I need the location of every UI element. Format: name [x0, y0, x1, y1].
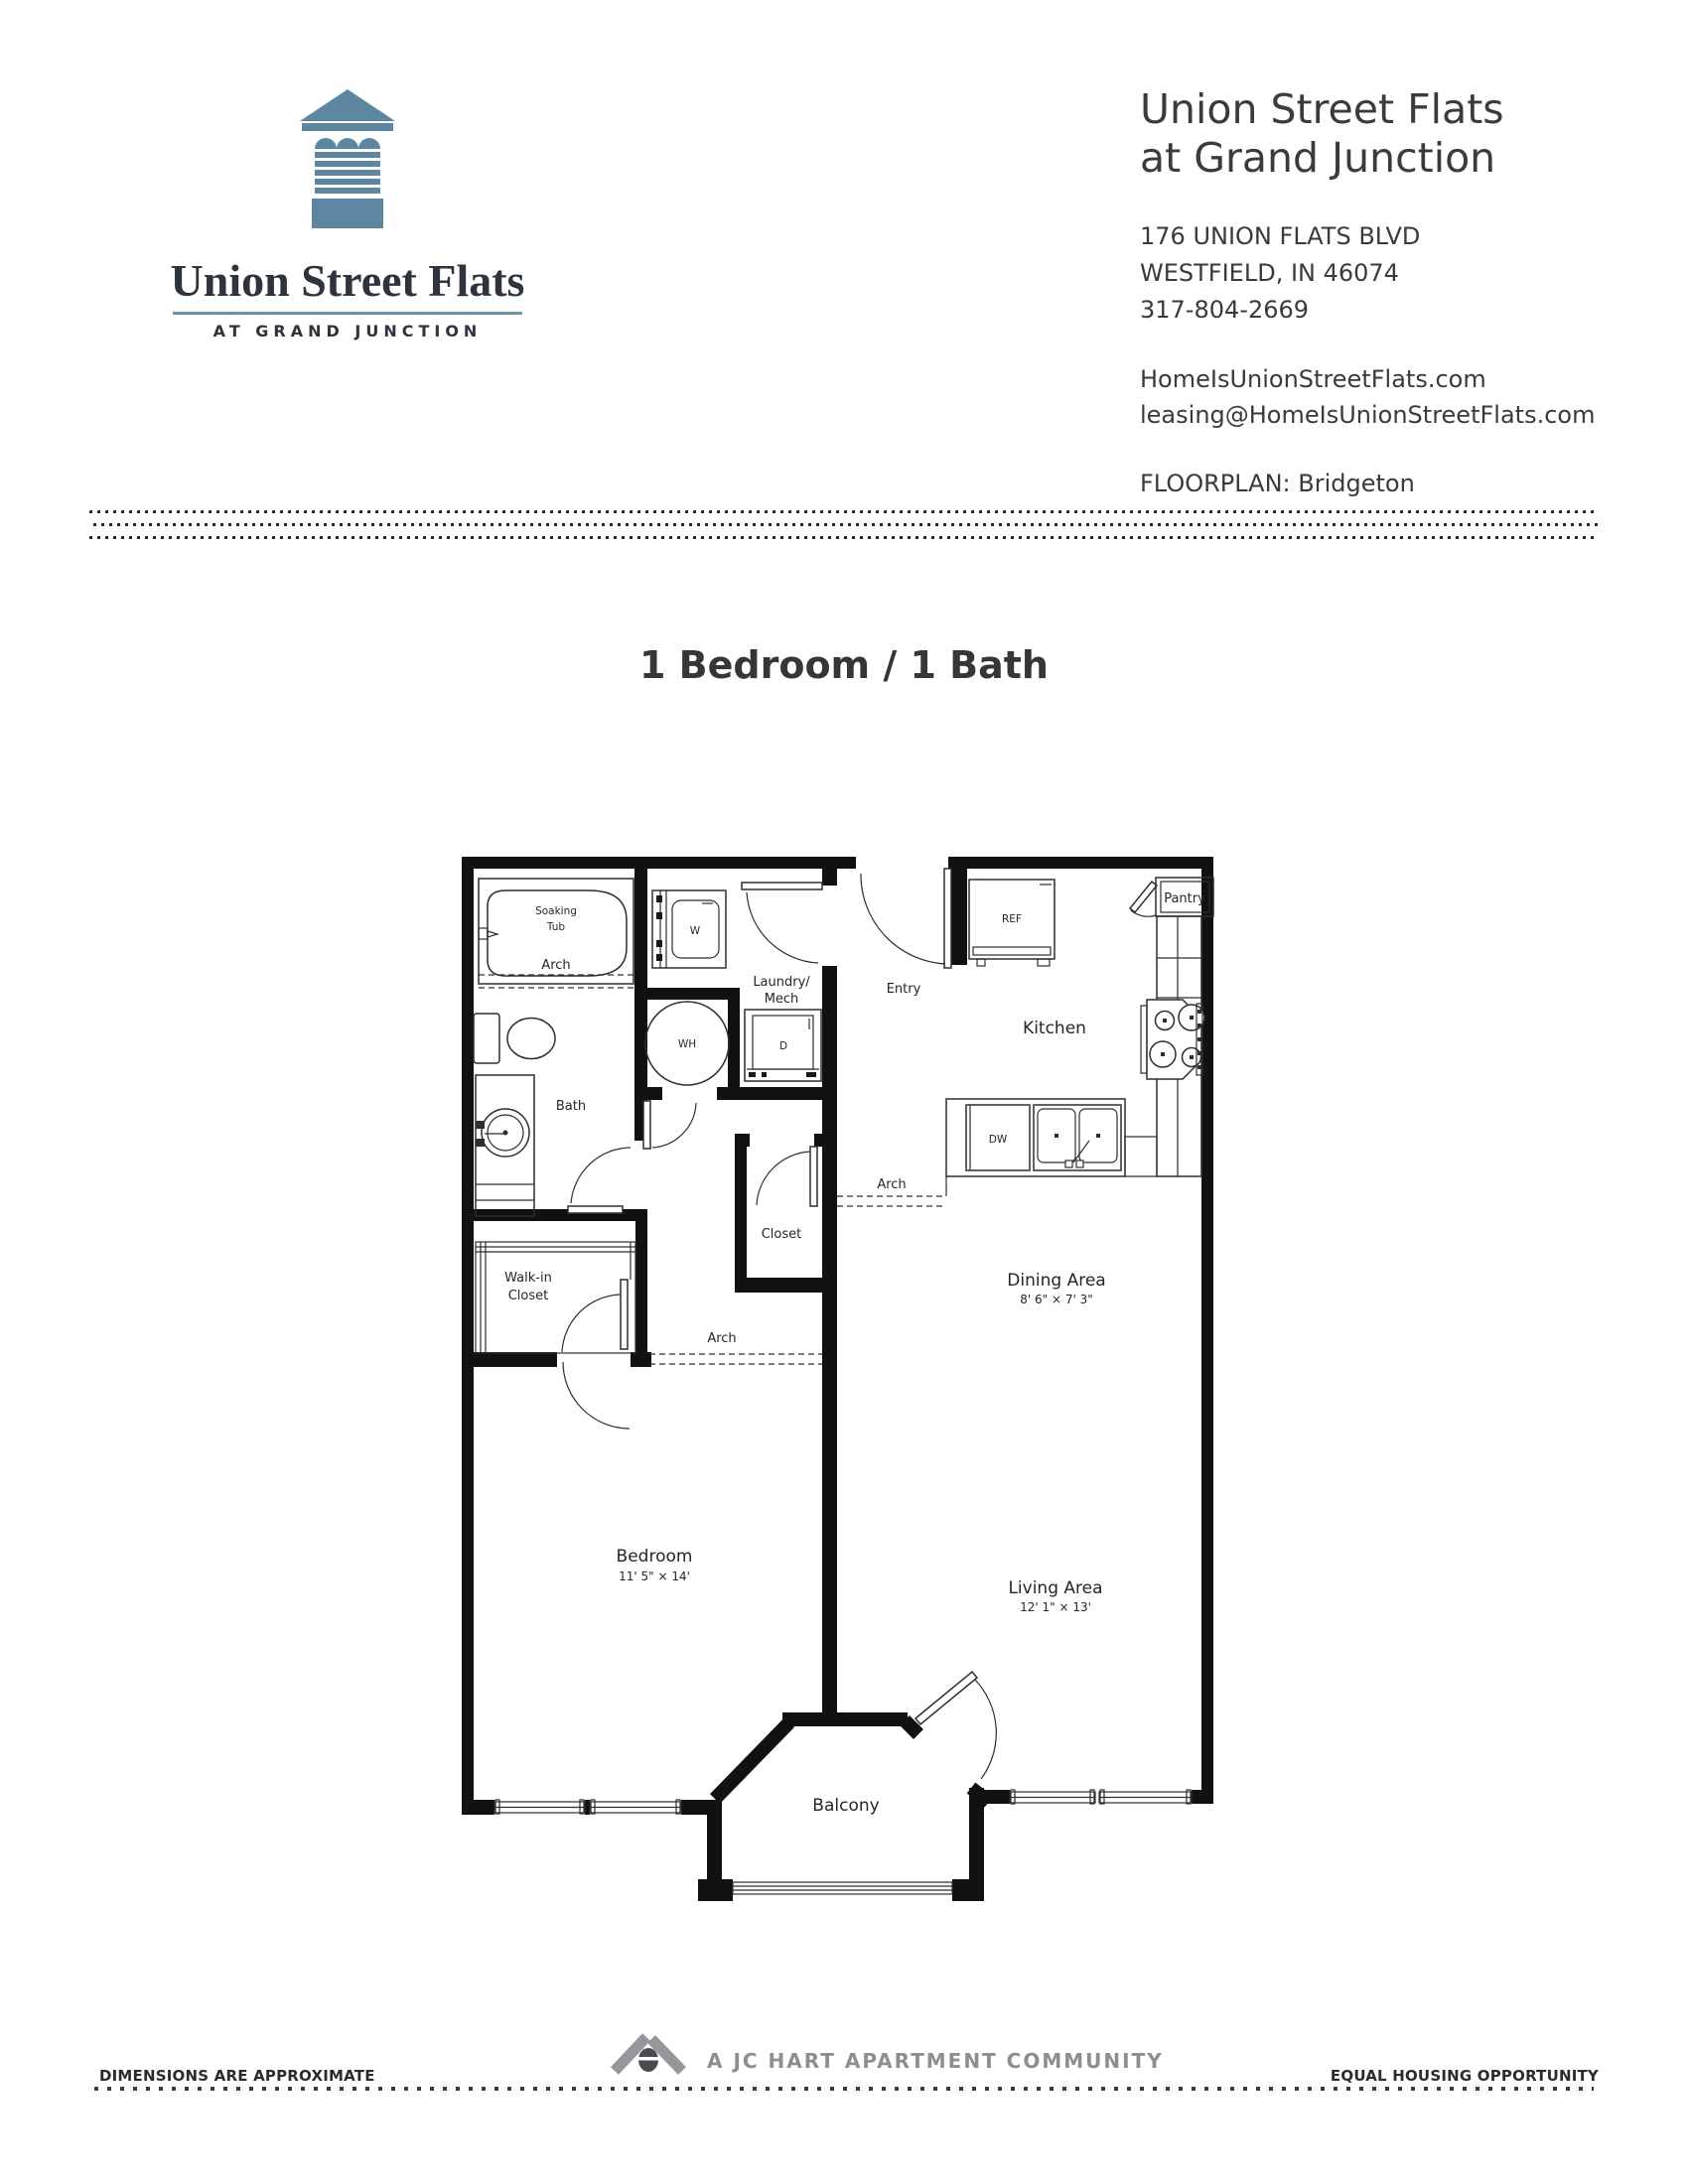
label-closet: Closet	[762, 1227, 802, 1242]
label-washer: W	[690, 925, 701, 937]
label-walkin-line2: Closet	[508, 1289, 549, 1303]
floorplan-label: FLOORPLAN:	[1140, 470, 1291, 497]
property-title-line1: Union Street Flats	[1140, 85, 1617, 134]
walk-in-closet-shelves	[476, 1242, 635, 1353]
divider-dots-row2	[89, 523, 1599, 526]
floorplan-line: FLOORPLAN: Bridgeton	[1140, 470, 1617, 497]
walls	[462, 857, 1213, 1901]
label-bedroom-dims: 11' 5" × 14'	[619, 1570, 690, 1583]
property-info: Union Street Flats at Grand Junction 176…	[1140, 85, 1617, 497]
hall-door	[643, 1101, 696, 1149]
footer-community-text: A JC HART APARTMENT COMMUNITY	[707, 2049, 1164, 2075]
divider-dots-row1	[89, 510, 1599, 513]
label-bath: Bath	[556, 1099, 586, 1114]
address-line2: WESTFIELD, IN 46074	[1140, 255, 1617, 292]
footer-dimensions-note: DIMENSIONS ARE APPROXIMATE	[99, 2067, 375, 2085]
bath-vanity	[476, 1075, 534, 1216]
property-web: HomeIsUnionStreetFlats.com leasing@HomeI…	[1140, 361, 1617, 433]
label-entry: Entry	[887, 982, 921, 997]
label-water-heater: WH	[678, 1038, 696, 1050]
jchart-house-icon	[611, 2027, 690, 2075]
label-living-dims: 12' 1" × 13'	[1020, 1600, 1091, 1614]
footer-equal-housing: EQUAL HOUSING OPPORTUNITY	[1331, 2067, 1599, 2085]
label-dining: Dining Area	[1007, 1271, 1105, 1291]
divider-dots-row3	[89, 536, 1599, 539]
brand-tagline: AT GRAND JUNCTION	[129, 322, 566, 341]
label-arch-tub: Arch	[541, 958, 570, 973]
brand-name: Union Street Flats	[129, 254, 566, 307]
page-title: 1 Bedroom / 1 Bath	[0, 643, 1688, 687]
toilet	[474, 1014, 555, 1063]
entry-door	[861, 869, 951, 968]
balcony-railing	[733, 1882, 952, 1894]
label-kitchen: Kitchen	[1023, 1019, 1086, 1038]
brand-rule	[173, 312, 522, 315]
walk-in-closet-door	[562, 1280, 630, 1429]
label-dryer: D	[779, 1040, 787, 1052]
brand-logo-block: Union Street Flats AT GRAND JUNCTION	[129, 87, 566, 341]
label-refrigerator: REF	[1002, 913, 1022, 925]
balcony-door	[915, 1672, 996, 1779]
website-link[interactable]: HomeIsUnionStreetFlats.com	[1140, 361, 1617, 397]
property-address: 176 UNION FLATS BLVD WESTFIELD, IN 46074…	[1140, 218, 1617, 329]
email-link[interactable]: leasing@HomeIsUnionStreetFlats.com	[1140, 397, 1617, 433]
label-bedroom: Bedroom	[617, 1547, 693, 1567]
label-soaking-tub-line2: Tub	[546, 921, 565, 933]
label-arch-kitchen: Arch	[877, 1177, 906, 1192]
phone-number: 317-804-2669	[1140, 292, 1617, 329]
label-balcony: Balcony	[812, 1796, 879, 1816]
label-arch-hall: Arch	[707, 1331, 736, 1346]
living-windows	[1010, 1790, 1192, 1804]
floorplan-drawing: Soaking Tub Arch W Laundry/ Mech D WH En…	[452, 849, 1226, 1911]
flyer-page: Union Street Flats AT GRAND JUNCTION Uni…	[0, 0, 1688, 2184]
property-title: Union Street Flats at Grand Junction	[1140, 85, 1617, 183]
label-living: Living Area	[1008, 1578, 1102, 1598]
kitchen-sink	[1034, 1105, 1121, 1170]
bath-door	[568, 1148, 631, 1213]
cupola-logo-icon	[298, 87, 397, 236]
address-line1: 176 UNION FLATS BLVD	[1140, 218, 1617, 255]
stove	[1141, 1000, 1204, 1079]
laundry-door	[742, 883, 822, 963]
label-laundry-line1: Laundry/	[753, 975, 810, 990]
label-pantry: Pantry	[1164, 891, 1205, 906]
floorplan-name: Bridgeton	[1298, 470, 1415, 497]
pantry-door	[1130, 882, 1157, 916]
label-dining-dims: 8' 6" × 7' 3"	[1020, 1293, 1093, 1306]
label-laundry-line2: Mech	[765, 992, 799, 1007]
label-dishwasher: DW	[989, 1134, 1008, 1146]
footer-jchart: A JC HART APARTMENT COMMUNITY	[611, 2027, 1164, 2075]
hall-closet-door	[757, 1147, 817, 1206]
property-title-line2: at Grand Junction	[1140, 134, 1617, 183]
label-soaking-tub-line1: Soaking	[535, 905, 577, 917]
footer-dotted-rule	[94, 2087, 1594, 2091]
label-walkin-line1: Walk-in	[504, 1271, 552, 1286]
